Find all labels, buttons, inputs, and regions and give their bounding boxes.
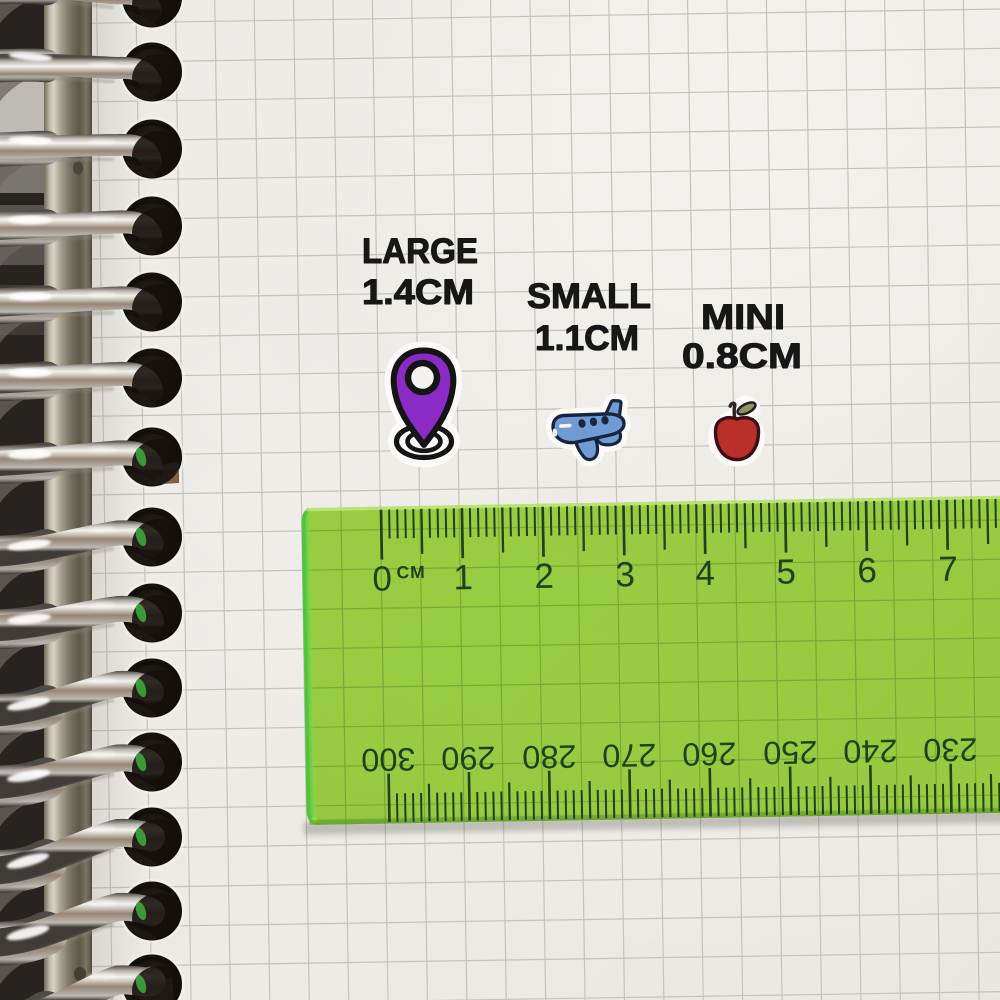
- svg-text:SMALL: SMALL: [527, 276, 651, 316]
- svg-text:280: 280: [522, 738, 577, 775]
- svg-text:0: 0: [372, 559, 392, 598]
- svg-text:250: 250: [763, 734, 818, 771]
- svg-text:6: 6: [857, 551, 877, 590]
- svg-text:240: 240: [843, 733, 898, 770]
- svg-text:LARGE: LARGE: [362, 231, 478, 271]
- svg-text:270: 270: [602, 737, 657, 774]
- svg-text:5: 5: [776, 552, 796, 591]
- svg-text:2: 2: [534, 557, 554, 596]
- svg-text:3: 3: [615, 555, 635, 594]
- svg-text:CM: CM: [396, 562, 426, 583]
- svg-text:1: 1: [453, 558, 473, 597]
- svg-text:230: 230: [923, 731, 978, 768]
- svg-text:4: 4: [695, 554, 715, 593]
- svg-text:0.8CM: 0.8CM: [682, 336, 802, 376]
- svg-text:1.1CM: 1.1CM: [535, 318, 639, 358]
- svg-text:260: 260: [682, 735, 737, 772]
- svg-text:MINI: MINI: [701, 297, 785, 337]
- svg-text:1.4CM: 1.4CM: [362, 272, 474, 312]
- svg-text:7: 7: [938, 550, 958, 589]
- svg-text:300: 300: [361, 741, 416, 778]
- svg-text:290: 290: [441, 740, 496, 777]
